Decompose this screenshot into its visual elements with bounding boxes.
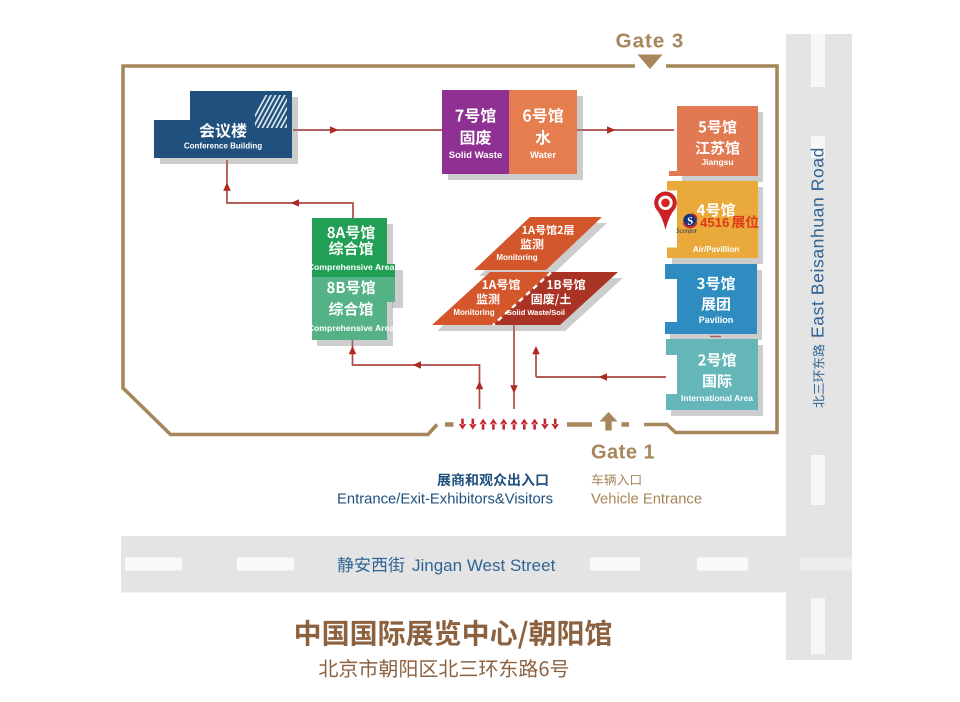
svg-text:Monitoring: Monitoring: [496, 253, 537, 262]
svg-text:Monitoring: Monitoring: [453, 308, 494, 317]
svg-text:Air/Pavillion: Air/Pavillion: [693, 245, 739, 254]
svg-text:Comprehensive Area: Comprehensive Area: [308, 323, 395, 333]
svg-text:Solid Waste: Solid Waste: [449, 150, 503, 161]
svg-text:Scentor: Scentor: [676, 227, 698, 235]
svg-text:Gate 3: Gate 3: [616, 30, 685, 53]
svg-text:Entrance/Exit-Exhibitors&Visit: Entrance/Exit-Exhibitors&Visitors: [337, 492, 553, 508]
svg-text:Pavilion: Pavilion: [699, 315, 734, 325]
svg-text:Conference Building: Conference Building: [184, 142, 262, 151]
svg-text:Solid Waste/Soil: Solid Waste/Soil: [507, 308, 565, 317]
svg-text:International Area: International Area: [681, 393, 753, 403]
svg-text:4516: 4516: [700, 215, 729, 230]
svg-text:Jingan West Street: Jingan West Street: [412, 556, 556, 575]
svg-text:Water: Water: [530, 150, 556, 161]
svg-text:Gate 1: Gate 1: [591, 442, 655, 464]
svg-text:Comprehensive Area: Comprehensive Area: [308, 262, 395, 272]
svg-text:Jiangsu: Jiangsu: [701, 157, 733, 167]
svg-text:East Beisanhuan Road: East Beisanhuan Road: [808, 147, 828, 338]
svg-text:Vehicle Entrance: Vehicle Entrance: [591, 492, 702, 508]
